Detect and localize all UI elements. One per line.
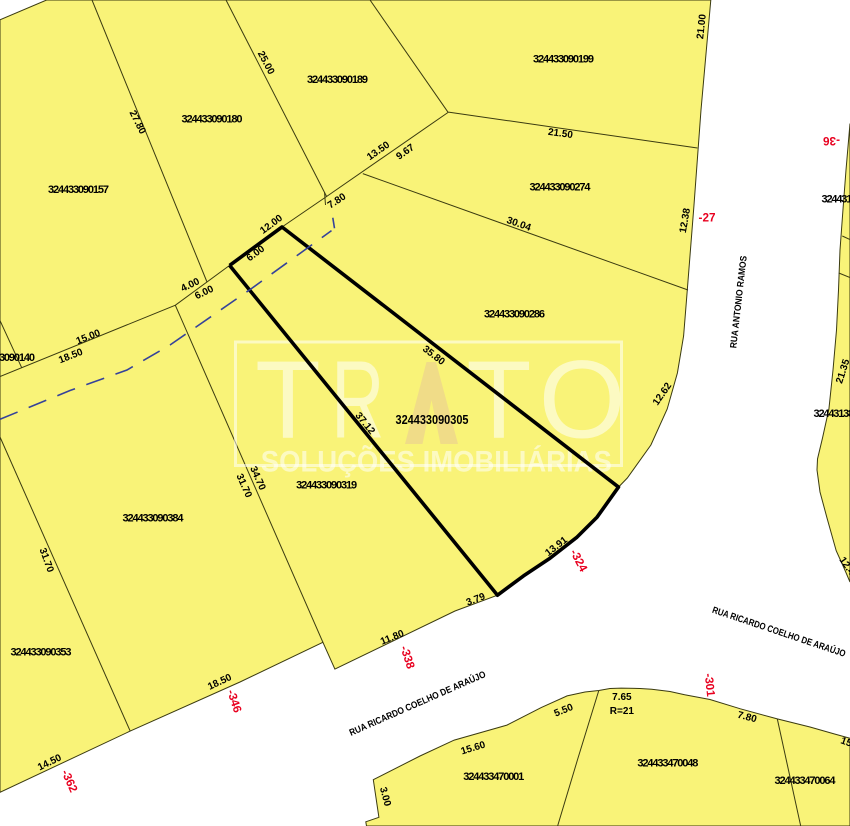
svg-text:324433090286: 324433090286 (484, 309, 545, 321)
svg-text:7.65: 7.65 (612, 692, 632, 703)
svg-text:-36: -36 (823, 134, 840, 147)
svg-text:324433090274: 324433090274 (530, 182, 592, 194)
svg-text:-27: -27 (699, 212, 716, 225)
svg-text:324433090157: 324433090157 (48, 184, 109, 196)
svg-text:324433090319: 324433090319 (296, 480, 357, 492)
svg-text:T: T (466, 339, 531, 462)
svg-text:324433090189: 324433090189 (307, 74, 368, 86)
svg-text:324433470048: 324433470048 (637, 758, 698, 770)
svg-text:O: O (539, 339, 626, 462)
svg-text:324433090353: 324433090353 (11, 647, 72, 659)
svg-text:-301: -301 (702, 673, 717, 698)
svg-text:324433090384: 324433090384 (123, 513, 185, 525)
svg-text:324433090199: 324433090199 (533, 54, 594, 66)
svg-text:324433090305: 324433090305 (396, 412, 469, 427)
svg-text:R=21: R=21 (610, 706, 635, 717)
svg-text:324433090140: 324433090140 (0, 352, 35, 364)
svg-text:324433090180: 324433090180 (182, 114, 243, 126)
svg-text:32443138: 32443138 (814, 408, 850, 420)
svg-text:324433470001: 324433470001 (463, 771, 524, 783)
svg-text:SOLUÇÕES IMOBILIÁRIAS: SOLUÇÕES IMOBILIÁRIAS (261, 445, 612, 479)
svg-text:32443138: 32443138 (822, 193, 850, 205)
svg-text:T: T (255, 339, 321, 462)
svg-text:324433470064: 324433470064 (775, 775, 837, 787)
